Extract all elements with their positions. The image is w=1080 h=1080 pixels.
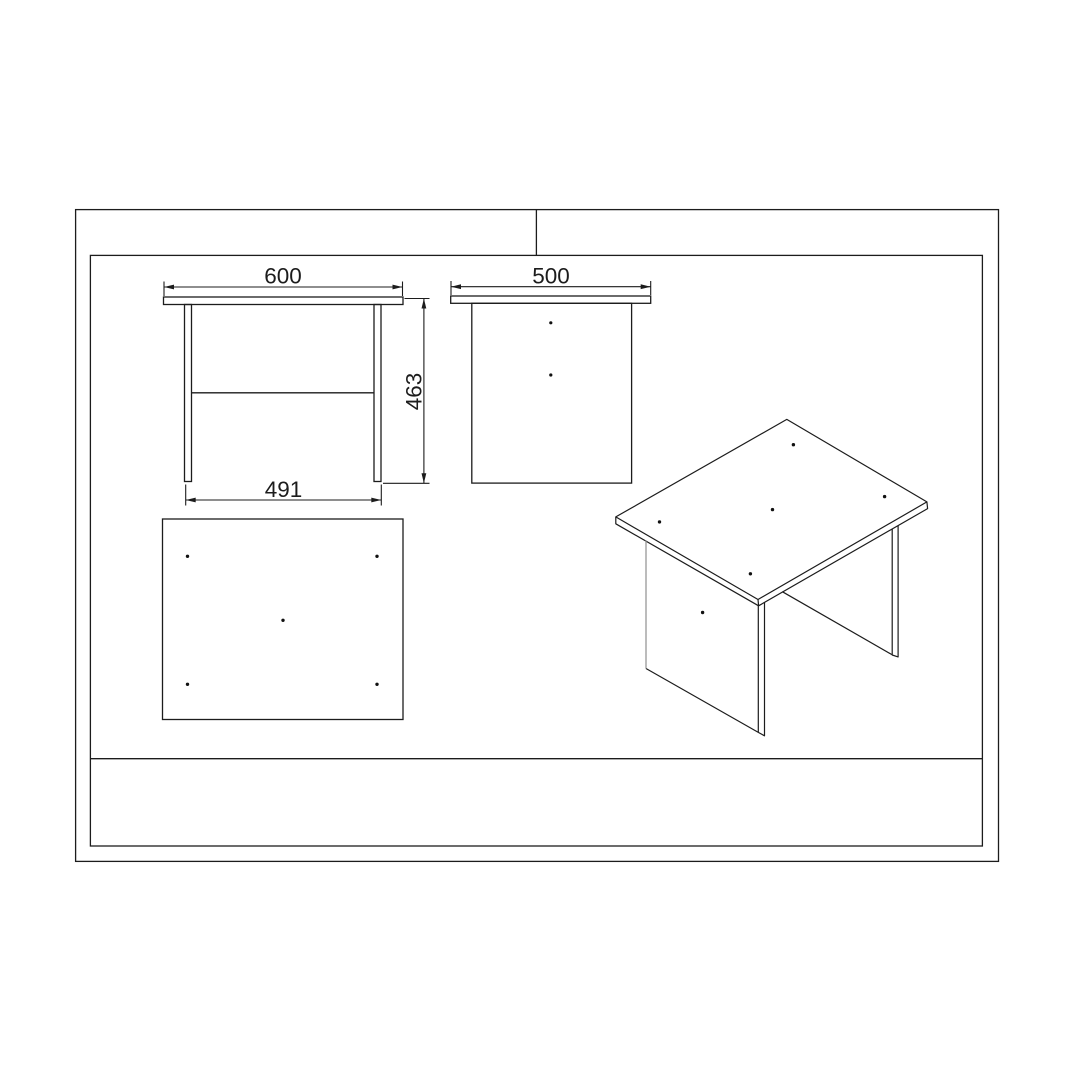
svg-text:600: 600 — [264, 264, 302, 289]
svg-text:463: 463 — [402, 373, 427, 411]
svg-text:500: 500 — [532, 263, 570, 288]
svg-text:491: 491 — [265, 477, 303, 502]
